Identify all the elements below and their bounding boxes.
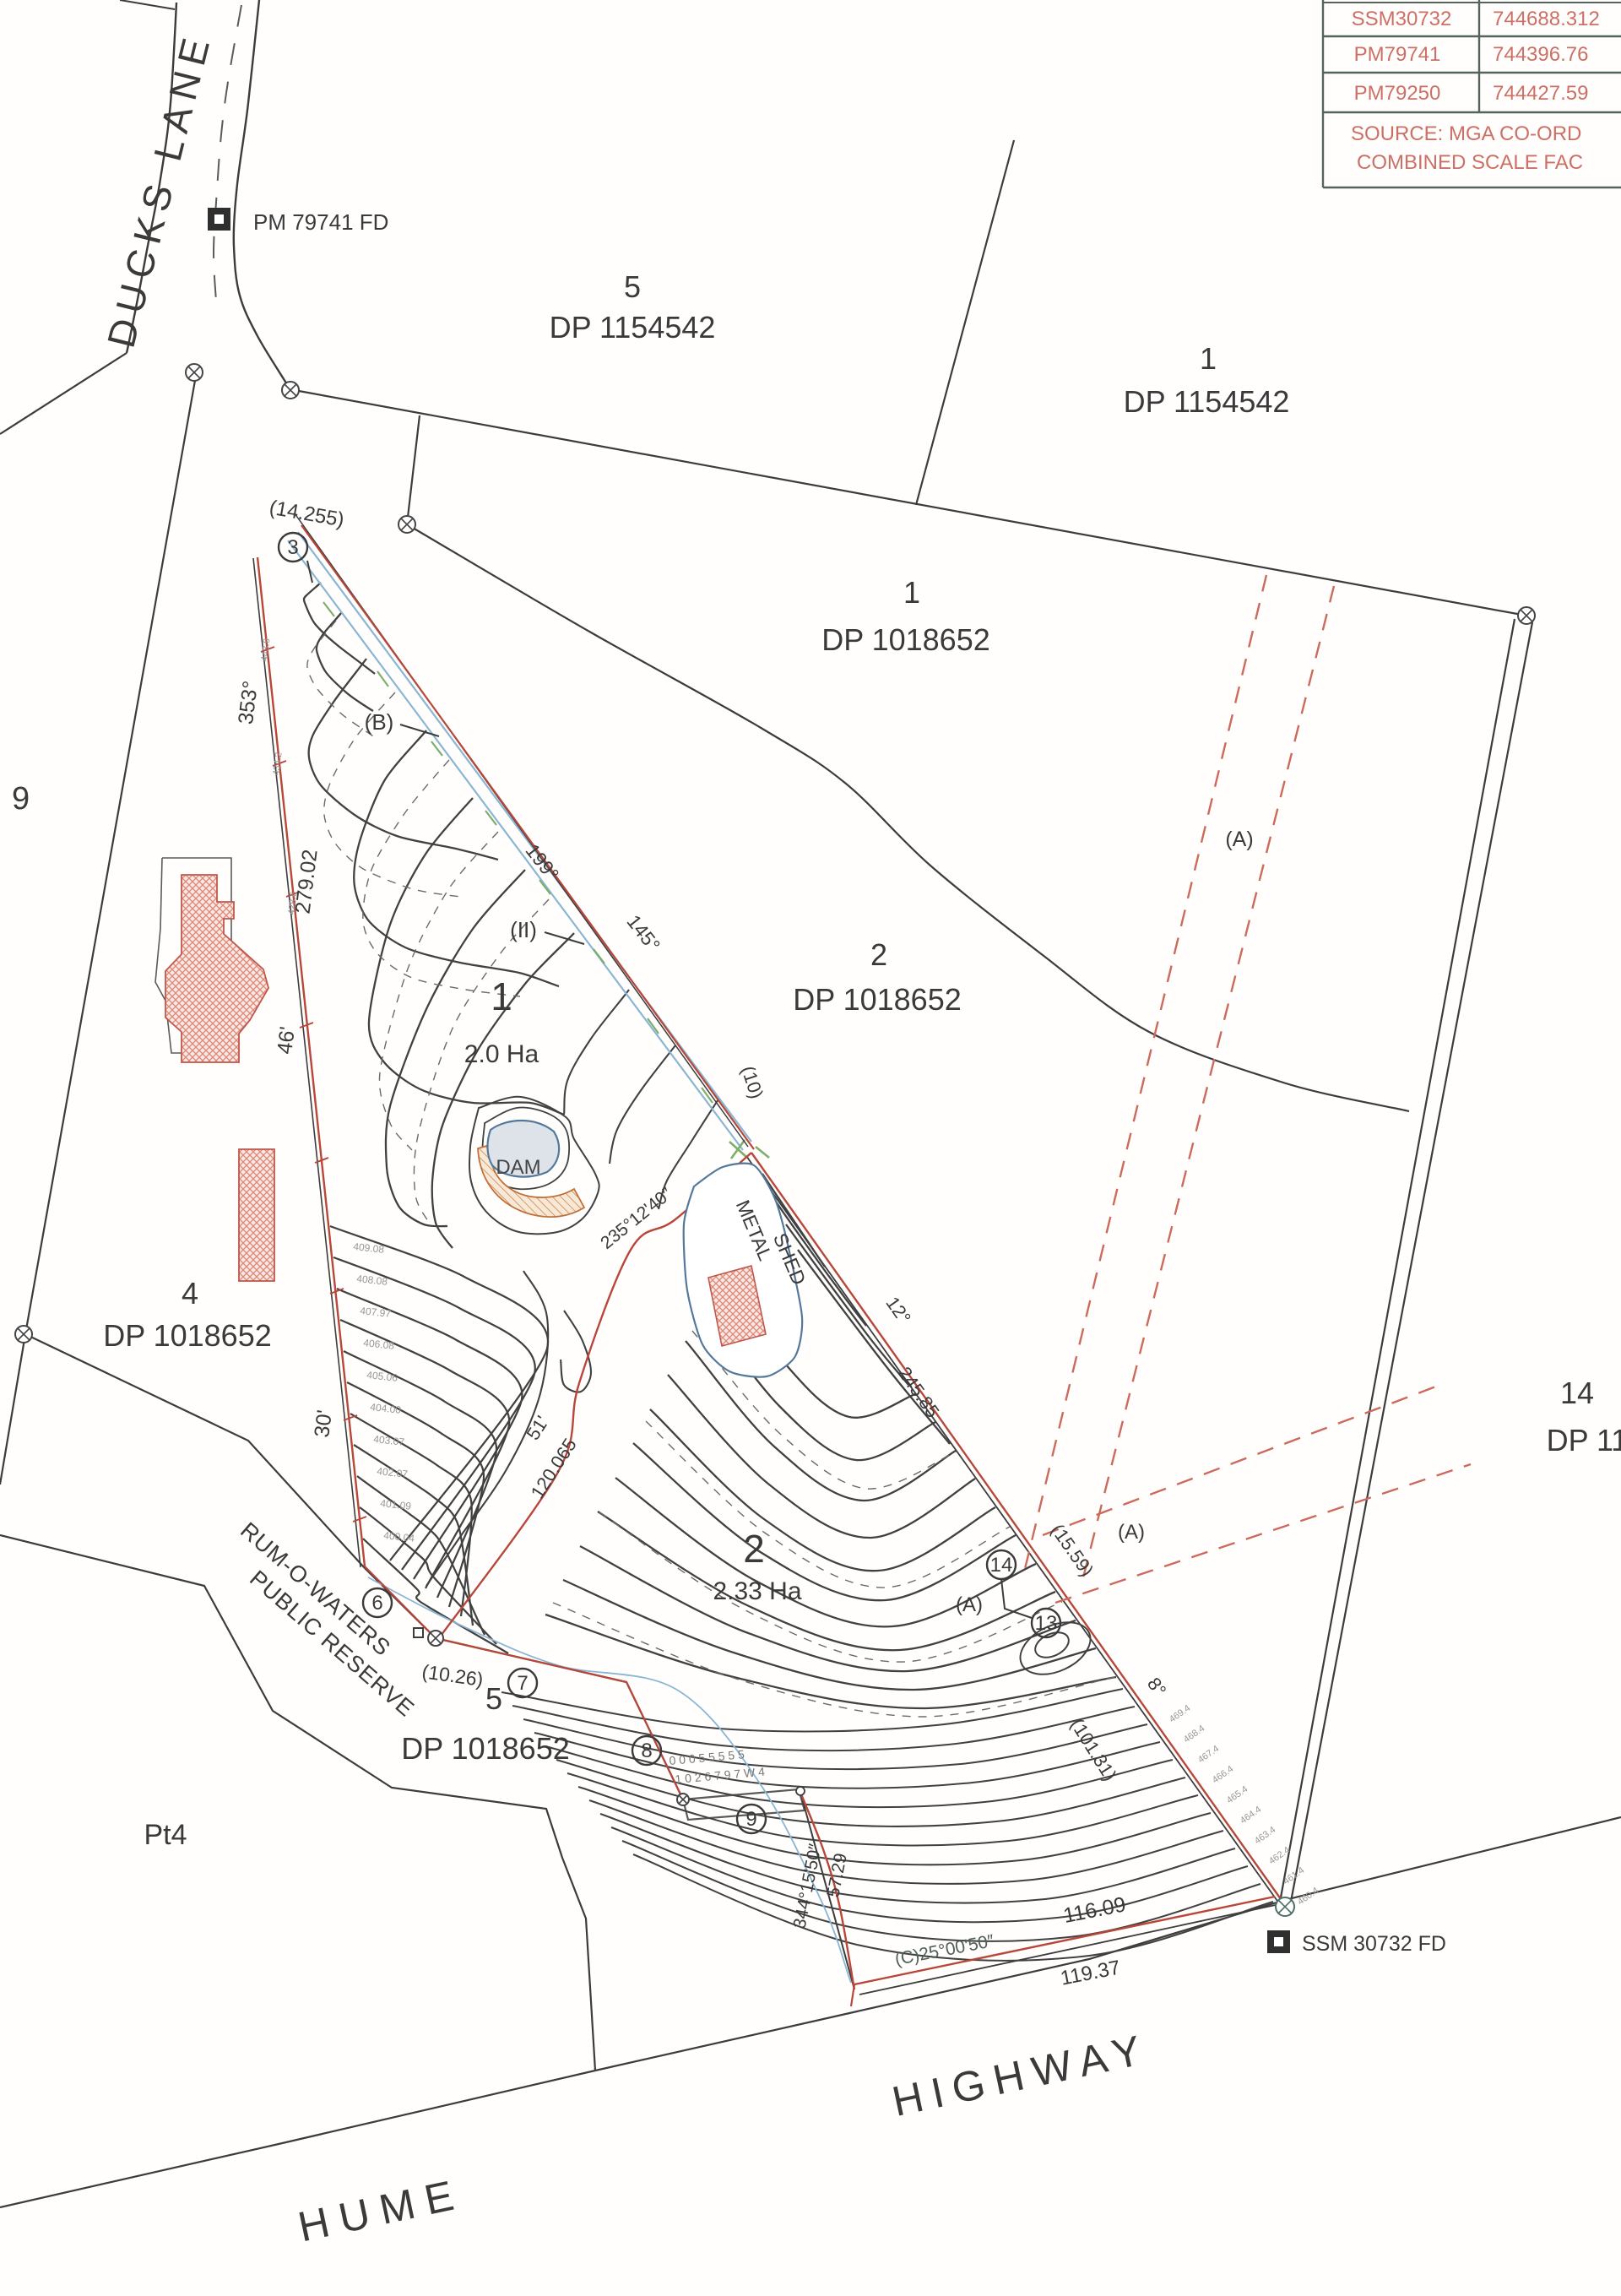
svg-text:SSM30732: SSM30732 xyxy=(1352,8,1452,30)
svg-text:1: 1 xyxy=(491,974,512,1018)
svg-text:744427.59: 744427.59 xyxy=(1493,82,1588,105)
svg-text:DP 11025: DP 11025 xyxy=(1547,1423,1621,1457)
svg-text:2.33 Ha: 2.33 Ha xyxy=(713,1577,801,1605)
svg-text:DP 1018652: DP 1018652 xyxy=(401,1731,570,1766)
svg-text:PM79741: PM79741 xyxy=(1354,43,1441,66)
svg-text:(A): (A) xyxy=(1225,828,1253,851)
svg-text:DP 1018652: DP 1018652 xyxy=(103,1318,272,1353)
svg-text:DP 1018652: DP 1018652 xyxy=(793,982,962,1017)
svg-text:DAM: DAM xyxy=(496,1156,540,1179)
svg-text:744688.312: 744688.312 xyxy=(1493,8,1600,30)
svg-text:SOURCE: MGA CO-ORD: SOURCE: MGA CO-ORD xyxy=(1351,122,1581,145)
svg-text:1: 1 xyxy=(1200,341,1217,376)
svg-text:2: 2 xyxy=(870,937,887,972)
svg-text:13: 13 xyxy=(1035,1612,1058,1635)
svg-text:14: 14 xyxy=(1560,1376,1594,1410)
svg-text:(B): (B) xyxy=(365,709,394,735)
svg-text:1: 1 xyxy=(903,575,920,610)
svg-text:30': 30' xyxy=(310,1409,337,1439)
svg-text:4: 4 xyxy=(182,1276,198,1311)
svg-text:PM 79741 FD: PM 79741 FD xyxy=(253,209,388,235)
svg-text:2.0 Ha: 2.0 Ha xyxy=(464,1040,539,1068)
svg-text:DP 1018652: DP 1018652 xyxy=(821,622,990,657)
svg-text:9: 9 xyxy=(12,781,30,817)
svg-text:5: 5 xyxy=(624,269,641,304)
svg-text:7: 7 xyxy=(517,1672,528,1695)
svg-text:9: 9 xyxy=(745,1808,756,1831)
svg-text:(A): (A) xyxy=(956,1593,983,1616)
svg-text:DP 1154542: DP 1154542 xyxy=(1124,384,1290,419)
svg-text:Pt4: Pt4 xyxy=(144,1819,187,1851)
svg-text:(A): (A) xyxy=(1118,1521,1145,1544)
svg-text:5: 5 xyxy=(485,1681,502,1716)
svg-text:3: 3 xyxy=(287,536,298,559)
svg-text:6: 6 xyxy=(371,1592,382,1615)
svg-text:PM79250: PM79250 xyxy=(1354,82,1441,105)
svg-text:14: 14 xyxy=(990,1554,1013,1577)
svg-text:COMBINED SCALE FAC: COMBINED SCALE FAC xyxy=(1357,151,1583,174)
svg-text:46': 46' xyxy=(273,1025,300,1056)
svg-text:SSM 30732 FD: SSM 30732 FD xyxy=(1302,1932,1446,1956)
svg-text:(II): (II) xyxy=(510,917,537,942)
svg-text:DP 1154542: DP 1154542 xyxy=(550,310,716,345)
svg-text:8: 8 xyxy=(641,1740,652,1762)
svg-text:744396.76: 744396.76 xyxy=(1493,43,1588,66)
svg-text:2: 2 xyxy=(743,1527,765,1571)
